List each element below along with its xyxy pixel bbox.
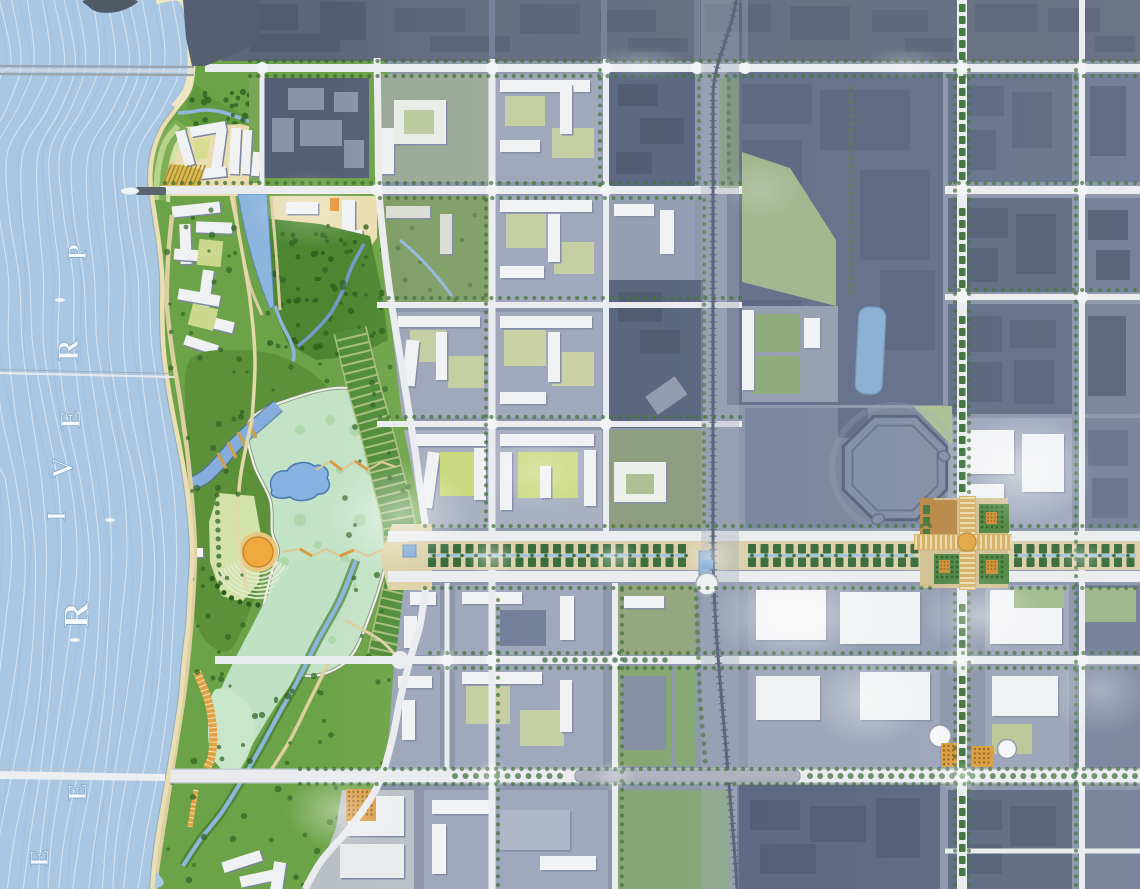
- svg-text:V: V: [48, 458, 79, 478]
- svg-text:R: R: [56, 601, 96, 628]
- svg-text:R: R: [52, 339, 85, 361]
- svg-text:E: E: [56, 410, 87, 429]
- svg-text:E: E: [63, 783, 92, 800]
- svg-text:E: E: [25, 849, 54, 866]
- svg-text:I: I: [42, 511, 71, 521]
- svg-text:P: P: [63, 244, 92, 260]
